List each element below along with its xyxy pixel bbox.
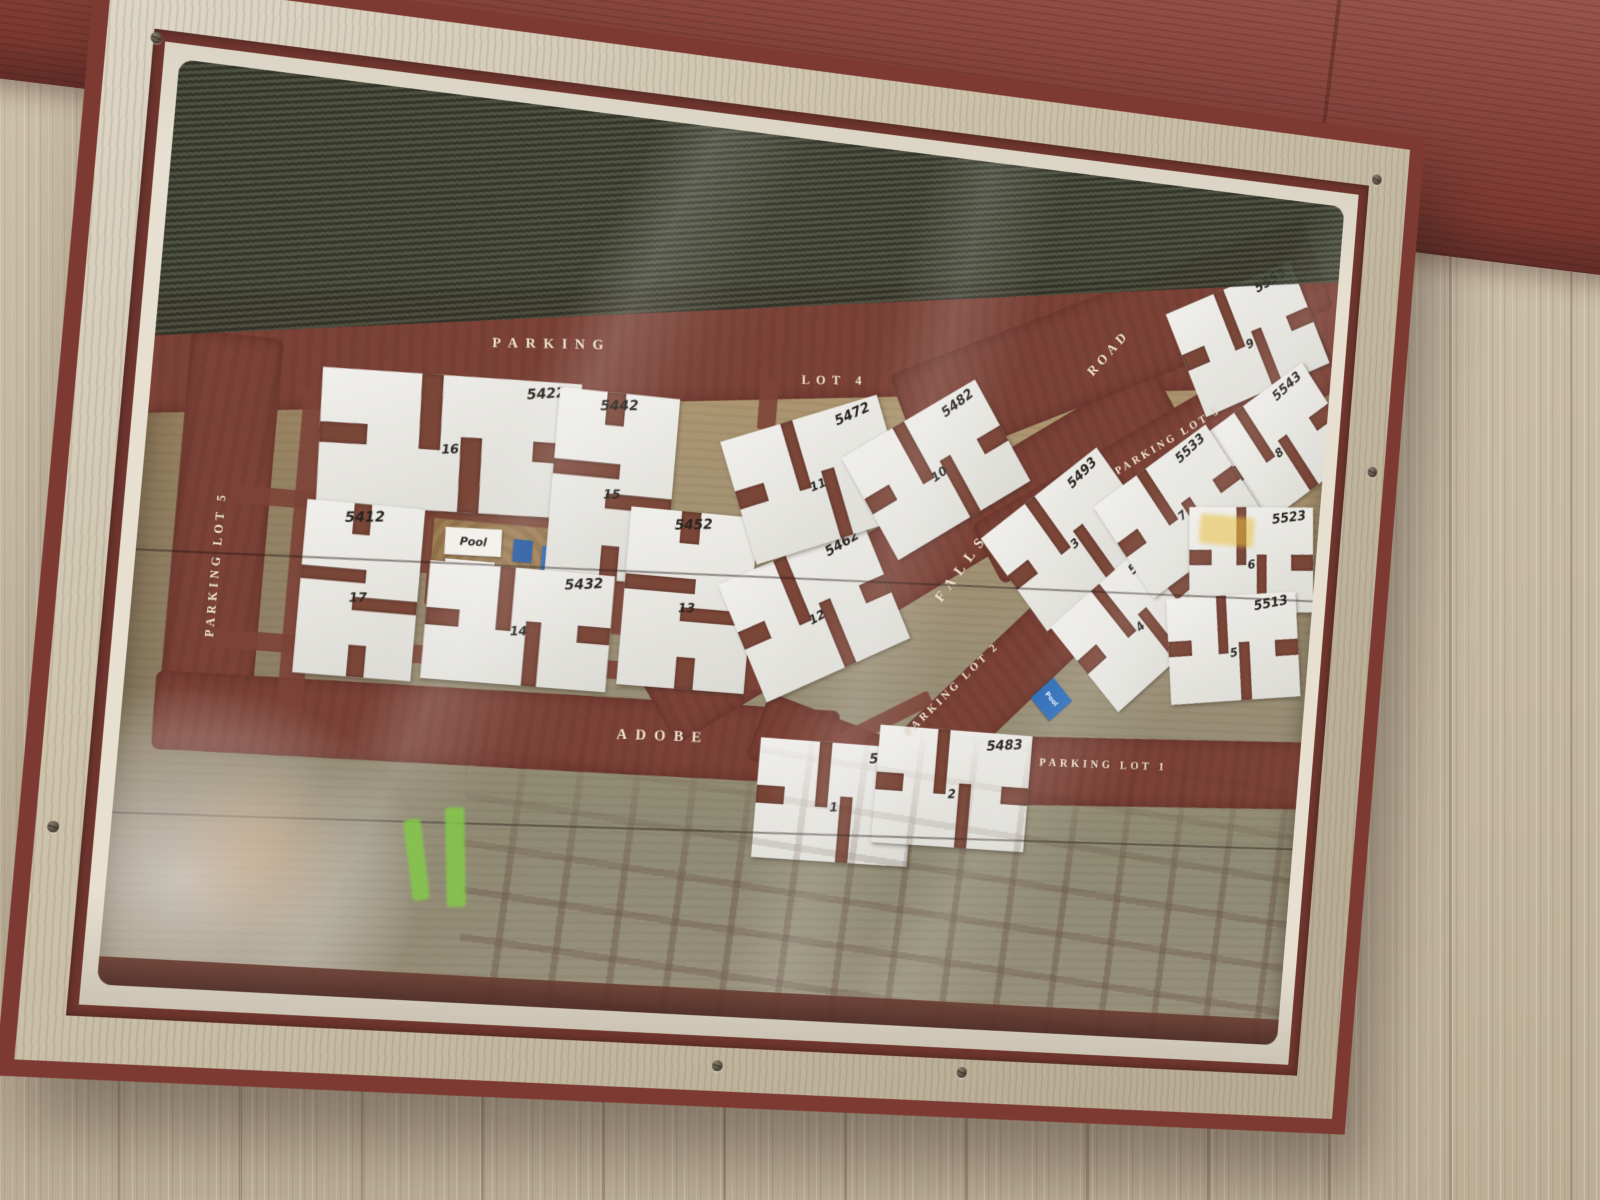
screw-icon	[1367, 466, 1377, 477]
inner-maroon-trim: PoolPoolPool5422165442155412175432145452…	[66, 29, 1369, 1076]
screw-icon	[956, 1067, 967, 1078]
glass-reflection-green	[445, 807, 466, 907]
map-glass: PoolPoolPool5422165442155412175432145452…	[97, 59, 1345, 1045]
photo-of-site-map-sign: { "sign": { "map": { "title_context": "a…	[0, 0, 1600, 1200]
wood-frame: PoolPoolPool5422165442155412175432145452…	[14, 0, 1410, 1119]
screw-icon	[47, 821, 60, 833]
outer-maroon-trim: PoolPoolPool5422165442155412175432145452…	[0, 0, 1425, 1135]
cream-mat: PoolPoolPool5422165442155412175432145452…	[79, 42, 1359, 1065]
glass-reflection-hand	[152, 746, 360, 960]
screw-icon	[1372, 174, 1382, 185]
site-map-display-case: PoolPoolPool5422165442155412175432145452…	[0, 0, 1425, 1135]
glass-reflection-vehicle	[1199, 513, 1255, 548]
screw-icon	[712, 1060, 724, 1071]
